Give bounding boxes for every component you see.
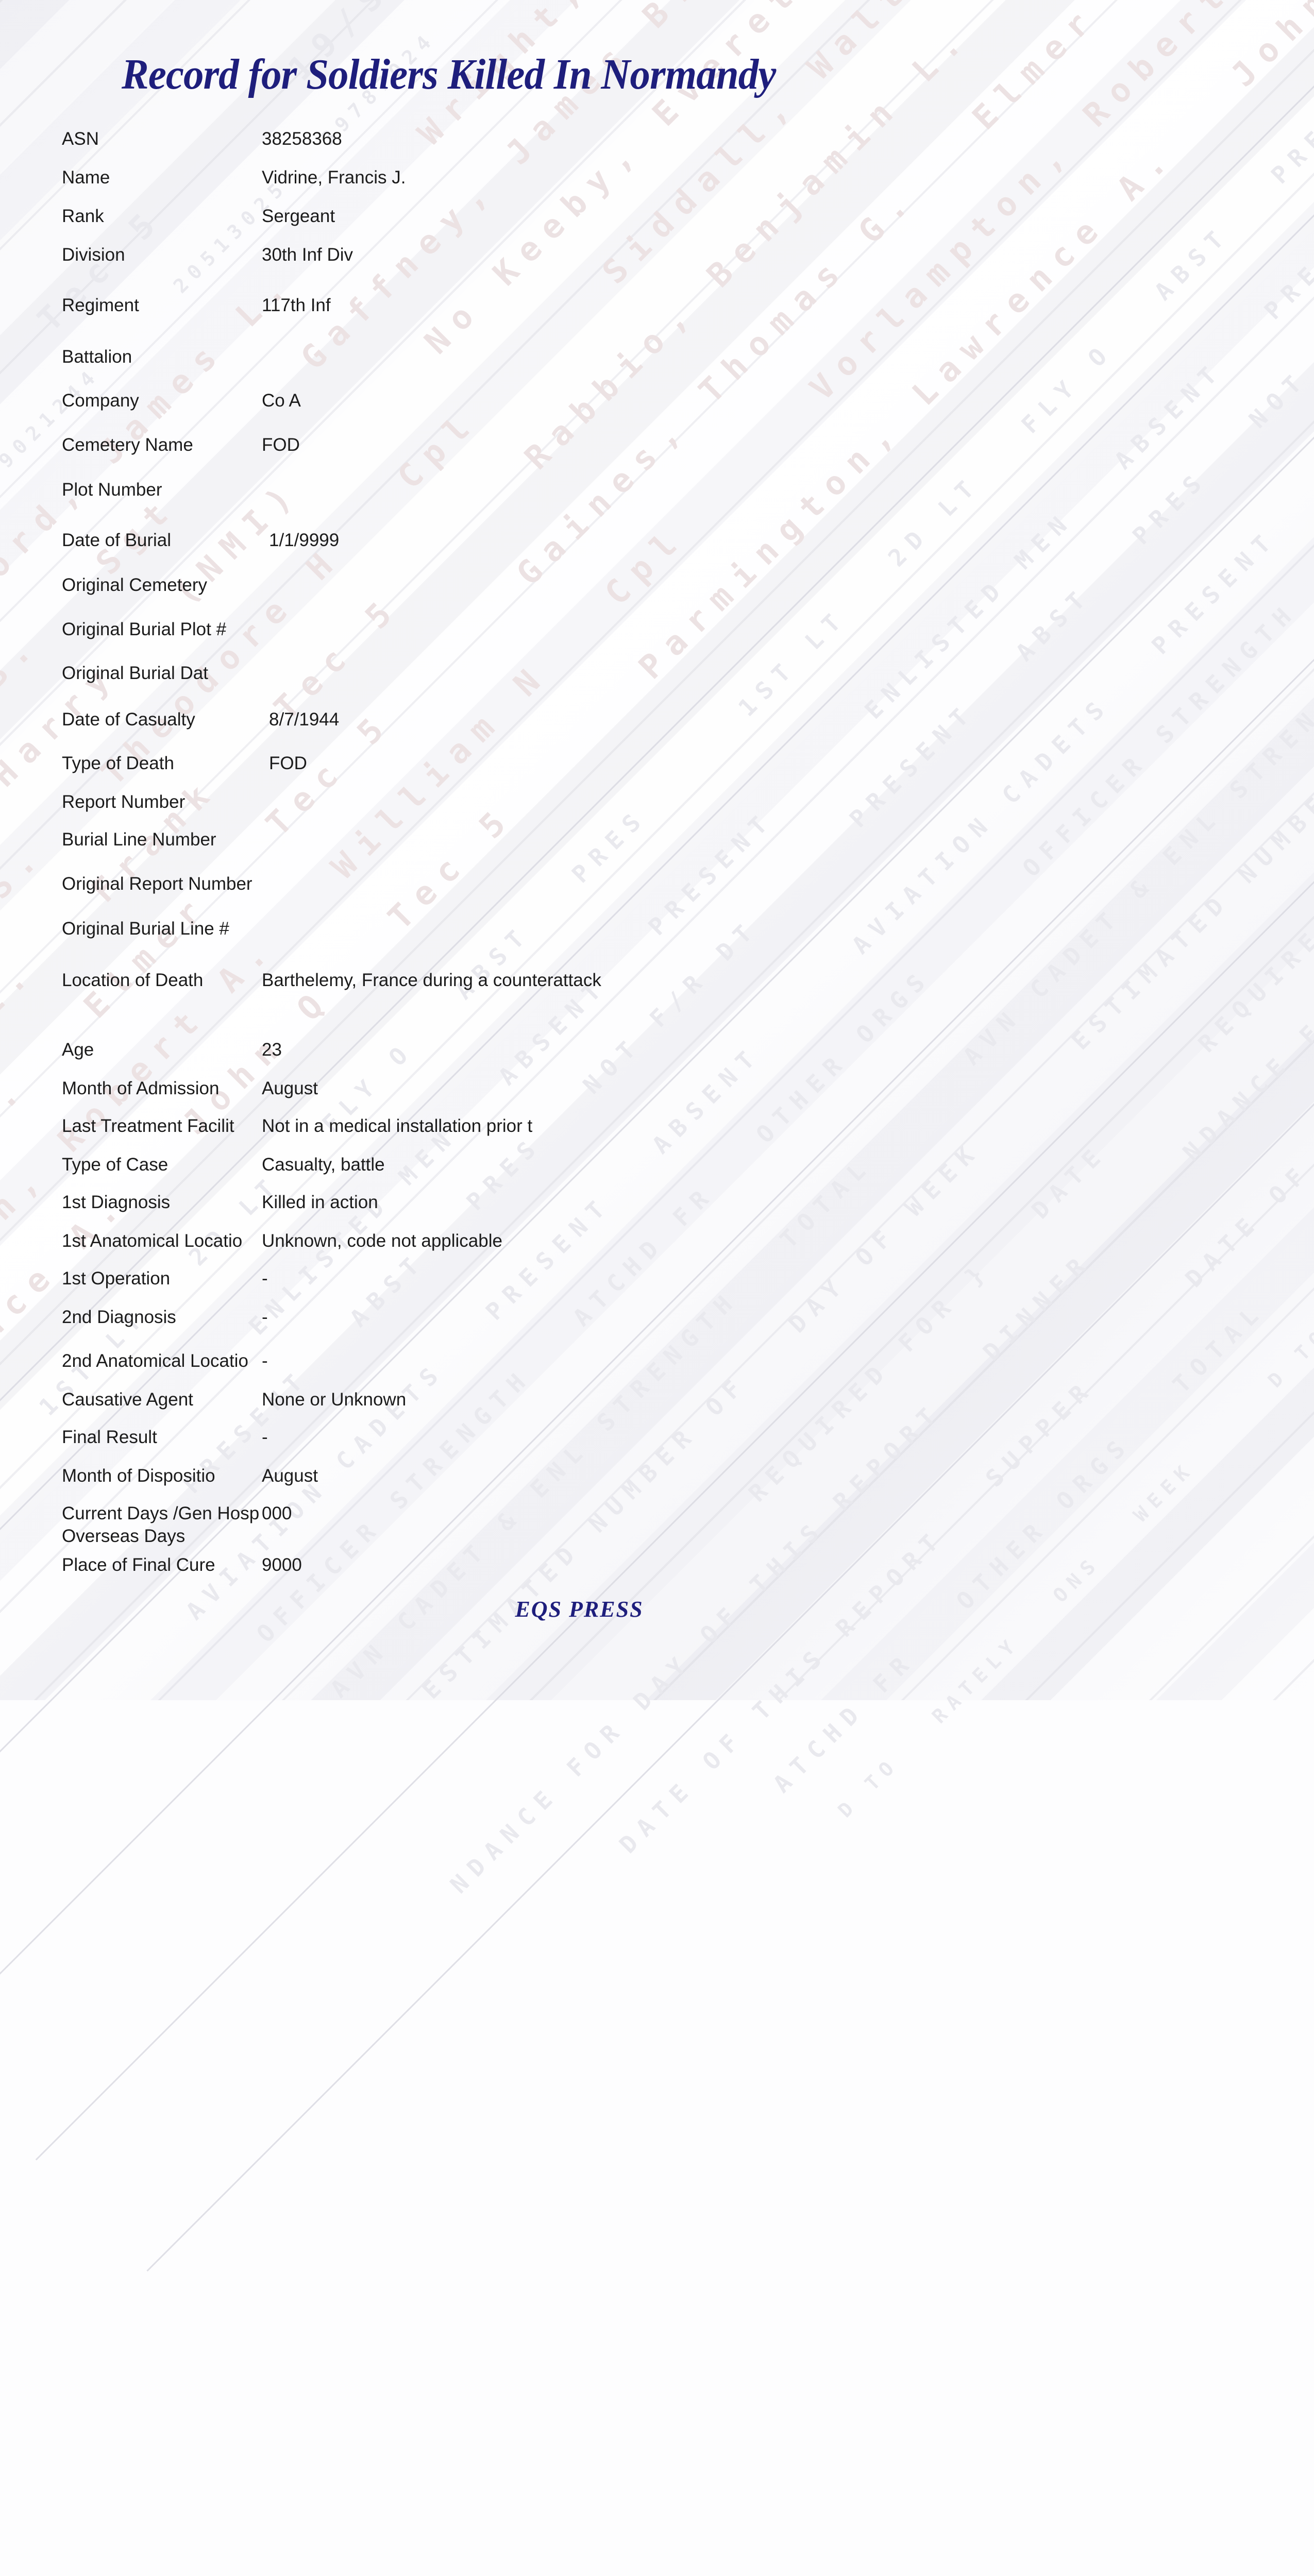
field-value: Not in a medical installation prior t <box>262 1115 532 1138</box>
record-row: Month of Dispositio August <box>62 1465 318 1487</box>
record-row: Date of Casualty 8/7/1944 <box>62 708 339 731</box>
field-label: Company <box>62 389 262 412</box>
record-row: Name Vidrine, Francis J. <box>62 166 406 189</box>
field-value: Unknown, code not applicable <box>262 1230 502 1252</box>
field-value: 1/1/9999 <box>262 529 339 552</box>
field-value: Casualty, battle <box>262 1154 385 1176</box>
field-value: 9000 <box>262 1554 302 1577</box>
field-label: Last Treatment Facilit <box>62 1115 262 1138</box>
field-value: 8/7/1944 <box>262 708 339 731</box>
field-value: FOD <box>262 752 307 775</box>
field-value: FOD <box>262 434 300 456</box>
field-label: Plot Number <box>62 479 262 501</box>
field-label: 1st Diagnosis <box>62 1191 262 1214</box>
field-label: Month of Dispositio <box>62 1465 262 1487</box>
record-row: Month of Admission August <box>62 1077 318 1100</box>
field-label: 1st Anatomical Locatio <box>62 1230 262 1252</box>
field-label: Burial Line Number <box>62 828 262 851</box>
field-value: 38258368 <box>262 128 342 150</box>
record-row: Date of Burial 1/1/9999 <box>62 529 339 552</box>
record-row: Company Co A <box>62 389 301 412</box>
field-label: Date of Burial <box>62 529 262 552</box>
field-label: Cemetery Name <box>62 434 262 456</box>
record-row: Last Treatment Facilit Not in a medical … <box>62 1115 532 1138</box>
field-label: Causative Agent <box>62 1388 262 1411</box>
field-label: Type of Death <box>62 752 262 775</box>
record-row: Burial Line Number <box>62 828 262 851</box>
record-row: Original Report Number <box>62 873 262 895</box>
record-row: Age 23 <box>62 1039 282 1061</box>
field-value: Sergeant <box>262 205 335 228</box>
record-row: Battalion <box>62 346 262 368</box>
field-value: August <box>262 1077 318 1100</box>
record-row: 1st Diagnosis Killed in action <box>62 1191 378 1214</box>
field-value: 30th Inf Div <box>262 244 353 266</box>
field-value: - <box>262 1350 268 1372</box>
field-label: ASN <box>62 128 262 150</box>
field-label: Rank <box>62 205 262 228</box>
record-row: Causative Agent None or Unknown <box>62 1388 406 1411</box>
field-value: Killed in action <box>262 1191 378 1214</box>
field-value: August <box>262 1465 318 1487</box>
record-row: 2nd Anatomical Locatio - <box>62 1350 268 1372</box>
record-row: 2nd Diagnosis - <box>62 1306 268 1329</box>
field-label: Final Result <box>62 1426 262 1449</box>
field-value: 117th Inf <box>262 294 331 317</box>
field-label: Report Number <box>62 791 262 814</box>
field-label: Regiment <box>62 294 262 317</box>
field-value: - <box>262 1306 268 1329</box>
record-row: Location of Death Barthelemy, France dur… <box>62 969 601 992</box>
field-value: 000 <box>262 1502 292 1525</box>
record-row: Original Burial Dat <box>62 662 262 685</box>
field-value: Vidrine, Francis J. <box>262 166 406 189</box>
field-value: None or Unknown <box>262 1388 406 1411</box>
field-label: Location of Death <box>62 969 262 992</box>
field-label: Current Days /Gen Hosp Overseas Days <box>62 1502 262 1548</box>
record-row: Type of Case Casualty, battle <box>62 1154 385 1176</box>
publisher-footer: EQS PRESS <box>0 1596 1158 1622</box>
field-label: Original Burial Dat <box>62 662 262 685</box>
field-label: Name <box>62 166 262 189</box>
document-page: { "page": { "title": "Record for Soldier… <box>0 0 1314 1700</box>
record-row: Original Burial Plot # <box>62 618 262 641</box>
record-row: Cemetery Name FOD <box>62 434 300 456</box>
field-label: 2nd Anatomical Locatio <box>62 1350 262 1372</box>
record-row: Place of Final Cure 9000 <box>62 1554 302 1577</box>
field-label: Original Cemetery <box>62 574 262 597</box>
record-row: 1st Anatomical Locatio Unknown, code not… <box>62 1230 502 1252</box>
field-label: 1st Operation <box>62 1267 262 1290</box>
field-label: Month of Admission <box>62 1077 262 1100</box>
field-label: Original Report Number <box>62 873 262 895</box>
field-label: Age <box>62 1039 262 1061</box>
record-row: Division 30th Inf Div <box>62 244 353 266</box>
field-value: Co A <box>262 389 301 412</box>
record-row: Type of Death FOD <box>62 752 307 775</box>
page-title: Record for Soldiers Killed In Normandy <box>122 49 776 99</box>
record-row: 1st Operation - <box>62 1267 268 1290</box>
field-value: 23 <box>262 1039 282 1061</box>
field-value: Barthelemy, France during a counterattac… <box>262 969 601 992</box>
field-label: Place of Final Cure <box>62 1554 262 1577</box>
field-label: Original Burial Plot # <box>62 618 262 641</box>
record-row: Regiment 117th Inf <box>62 294 331 317</box>
field-label: Date of Casualty <box>62 708 262 731</box>
field-label: 2nd Diagnosis <box>62 1306 262 1329</box>
field-value: - <box>262 1426 268 1449</box>
record-row: Original Burial Line # <box>62 918 262 940</box>
field-label: Type of Case <box>62 1154 262 1176</box>
record-row: ASN 38258368 <box>62 128 342 150</box>
record-row: Original Cemetery <box>62 574 262 597</box>
record-row: Plot Number <box>62 479 262 501</box>
record-row: Current Days /Gen Hosp Overseas Days 000 <box>62 1502 292 1548</box>
field-value: - <box>262 1267 268 1290</box>
record-row: Final Result - <box>62 1426 268 1449</box>
field-label: Battalion <box>62 346 262 368</box>
field-label: Original Burial Line # <box>62 918 262 940</box>
record-row: Rank Sergeant <box>62 205 335 228</box>
record-row: Report Number <box>62 791 262 814</box>
field-label: Division <box>62 244 262 266</box>
